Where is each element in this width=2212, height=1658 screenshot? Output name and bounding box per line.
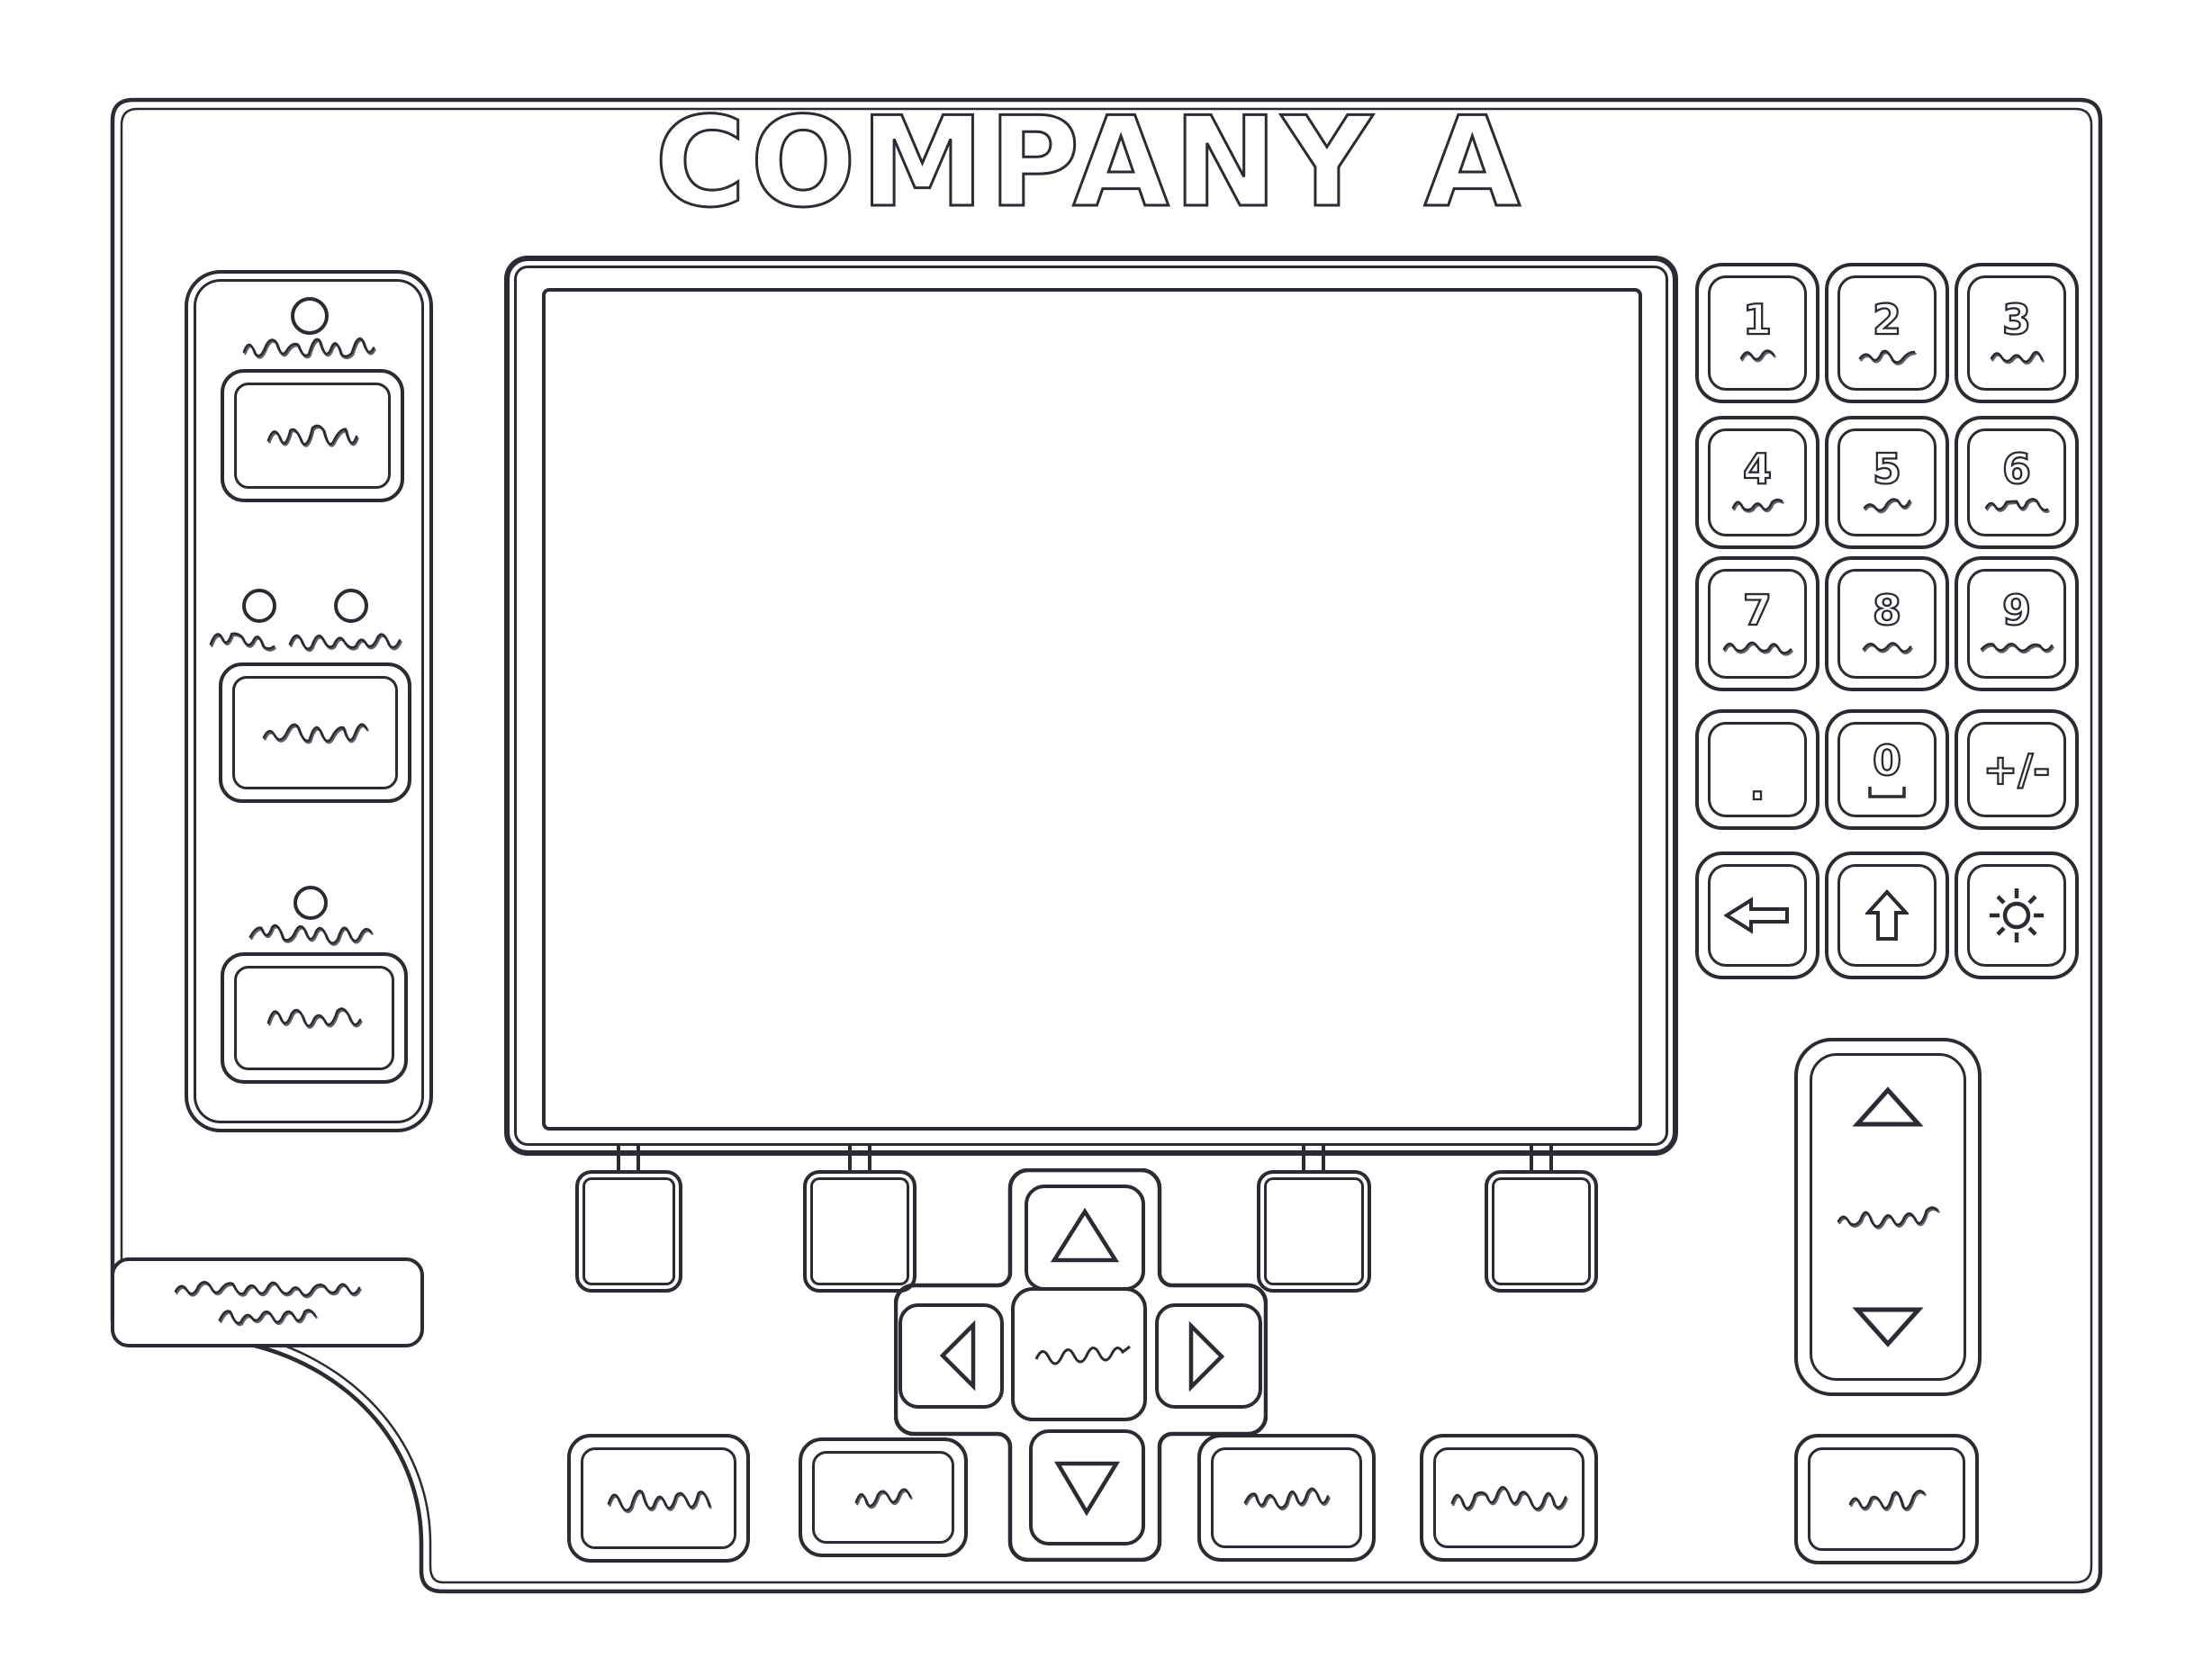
key-1-label: 1 — [1743, 299, 1772, 340]
key-6-sublabel-scribble — [1983, 493, 2050, 517]
key-3-label: 3 — [2002, 299, 2031, 340]
start-button-label-scribble — [1449, 1476, 1568, 1519]
clear-button-label-scribble — [853, 1479, 913, 1517]
menu-button[interactable] — [1013, 1289, 1145, 1419]
adjust-up-button[interactable] — [1850, 1083, 1926, 1130]
key-8[interactable]: 8 — [1825, 556, 1949, 691]
key-8-sublabel-scribble — [1861, 635, 1913, 658]
key-2-label: 2 — [1873, 299, 1901, 340]
soft-key-3[interactable] — [1257, 1170, 1371, 1293]
backspace-arrow-icon — [1724, 896, 1791, 935]
nav-left-button[interactable] — [900, 1305, 1002, 1407]
aux-button[interactable] — [1794, 1434, 1979, 1564]
left-button-3-label-scribble — [266, 998, 363, 1038]
screen-display — [542, 288, 1642, 1131]
soft-key-4[interactable] — [1485, 1170, 1598, 1293]
left-button-1[interactable] — [221, 369, 404, 502]
stop-button[interactable] — [567, 1434, 750, 1563]
left-button-3-face — [234, 966, 394, 1070]
key-plus-minus-label: +/- — [1983, 749, 2050, 790]
menu-label-scribble — [1036, 1347, 1130, 1364]
key-0-face: 0 — [1837, 722, 1937, 817]
key-6-label: 6 — [2002, 448, 2031, 490]
brand-title: COMPANY A — [655, 101, 1524, 225]
key-1-face: 1 — [1708, 275, 1807, 391]
key-8-label: 8 — [1873, 590, 1901, 631]
brightness-sun-icon — [1987, 886, 2046, 945]
soft-key-1[interactable] — [575, 1170, 682, 1293]
soft-key-3-connector — [1302, 1143, 1325, 1174]
shift-up-arrow-icon — [1865, 889, 1909, 942]
key-3-face: 3 — [1967, 275, 2066, 391]
run-button-face — [1211, 1447, 1362, 1548]
key-5-sublabel-scribble — [1862, 493, 1912, 517]
soft-key-2-connector — [848, 1143, 871, 1174]
screen-bezel — [504, 256, 1678, 1156]
nav-right-button[interactable] — [1157, 1305, 1260, 1407]
start-button[interactable] — [1420, 1434, 1598, 1562]
adjust-rocker — [1794, 1038, 1982, 1396]
key-6-face: 6 — [1967, 428, 2066, 536]
key-1[interactable]: 1 — [1695, 263, 1819, 403]
left-button-2-face — [232, 676, 398, 789]
key-7-sublabel-scribble — [1721, 635, 1793, 658]
key-plus-minus[interactable]: +/- — [1955, 709, 2079, 830]
aux-button-face — [1808, 1447, 1965, 1551]
stop-button-face — [581, 1447, 736, 1549]
adjust-rocker-face — [1810, 1053, 1966, 1381]
key-backspace[interactable] — [1695, 852, 1819, 979]
key-7-face: 7 — [1708, 569, 1807, 679]
left-button-1-label-scribble — [266, 416, 359, 455]
key-0[interactable]: 0 — [1825, 709, 1949, 830]
key-7-label: 7 — [1743, 590, 1772, 631]
key-decimal-face: . — [1708, 722, 1807, 817]
key-9[interactable]: 9 — [1955, 556, 2079, 691]
left-button-1-face — [234, 383, 391, 489]
key-3-sublabel-scribble — [1989, 344, 2045, 367]
key-1-sublabel-scribble — [1738, 344, 1776, 367]
key-3[interactable]: 3 — [1955, 263, 2079, 403]
key-9-label: 9 — [2002, 590, 2031, 631]
key-2-sublabel-scribble — [1857, 344, 1917, 367]
soft-key-4-connector — [1530, 1143, 1553, 1174]
run-button[interactable] — [1197, 1434, 1376, 1562]
stop-button-label-scribble — [606, 1478, 712, 1519]
start-button-face — [1433, 1447, 1585, 1548]
adjust-up-triangle-icon — [1857, 1090, 1919, 1124]
adjust-down-button[interactable] — [1850, 1304, 1926, 1351]
key-shift-face — [1837, 864, 1937, 967]
indicator-light-2b — [334, 589, 368, 623]
key-5[interactable]: 5 — [1825, 416, 1949, 549]
key-shift[interactable] — [1825, 852, 1949, 979]
nav-right-triangle-icon — [1191, 1326, 1222, 1387]
emergency-label-scribble-line1 — [173, 1275, 362, 1302]
device-front-panel: COMPANY A — [0, 0, 2212, 1658]
key-decimal-label: . — [1749, 764, 1765, 806]
key-6[interactable]: 6 — [1955, 416, 2079, 549]
key-plus-minus-face: +/- — [1967, 722, 2066, 817]
key-5-face: 5 — [1837, 428, 1937, 536]
run-button-label-scribble — [1242, 1478, 1331, 1518]
indicator-light-2a — [242, 589, 276, 623]
key-5-label: 5 — [1873, 448, 1901, 490]
adjust-down-triangle-icon — [1857, 1310, 1919, 1344]
key-brightness-face — [1967, 864, 2066, 967]
status-label-scribble-2b — [287, 623, 402, 657]
clear-button-face — [812, 1451, 954, 1544]
key-2[interactable]: 2 — [1825, 263, 1949, 403]
key-backspace-face — [1708, 864, 1807, 967]
adjust-label-scribble — [1836, 1199, 1940, 1235]
nav-down-triangle-icon — [1058, 1464, 1116, 1512]
left-button-3[interactable] — [221, 952, 408, 1084]
status-label-scribble-2a — [208, 623, 276, 657]
key-4-sublabel-scribble — [1730, 493, 1784, 517]
key-brightness[interactable] — [1955, 852, 2079, 979]
clear-button[interactable] — [799, 1437, 968, 1557]
nav-up-button[interactable] — [1026, 1186, 1143, 1289]
key-9-sublabel-scribble — [1979, 635, 2054, 658]
left-button-2-label-scribble — [261, 713, 369, 752]
status-label-scribble-1 — [241, 329, 376, 365]
key-4-face: 4 — [1708, 428, 1807, 536]
aux-button-label-scribble — [1847, 1482, 1927, 1518]
emergency-stop-plate — [111, 1257, 424, 1347]
key-7[interactable]: 7 — [1695, 556, 1819, 691]
status-label-scribble-3 — [248, 915, 374, 951]
key-decimal[interactable]: . — [1695, 709, 1819, 830]
key-9-face: 9 — [1967, 569, 2066, 679]
nav-down-button[interactable] — [1031, 1431, 1143, 1544]
key-0-label: 0 — [1873, 740, 1901, 781]
emergency-label-scribble-line2 — [217, 1303, 318, 1330]
key-4-label: 4 — [1743, 448, 1772, 490]
left-status-panel — [185, 270, 433, 1132]
nav-left-triangle-icon — [943, 1325, 973, 1386]
key-4[interactable]: 4 — [1695, 416, 1819, 549]
soft-key-1-connector — [617, 1143, 640, 1174]
nav-up-triangle-icon — [1054, 1212, 1115, 1260]
key-2-face: 2 — [1837, 275, 1937, 391]
key-8-face: 8 — [1837, 569, 1937, 679]
space-symbol-icon — [1867, 785, 1907, 799]
left-button-2[interactable] — [219, 662, 411, 803]
